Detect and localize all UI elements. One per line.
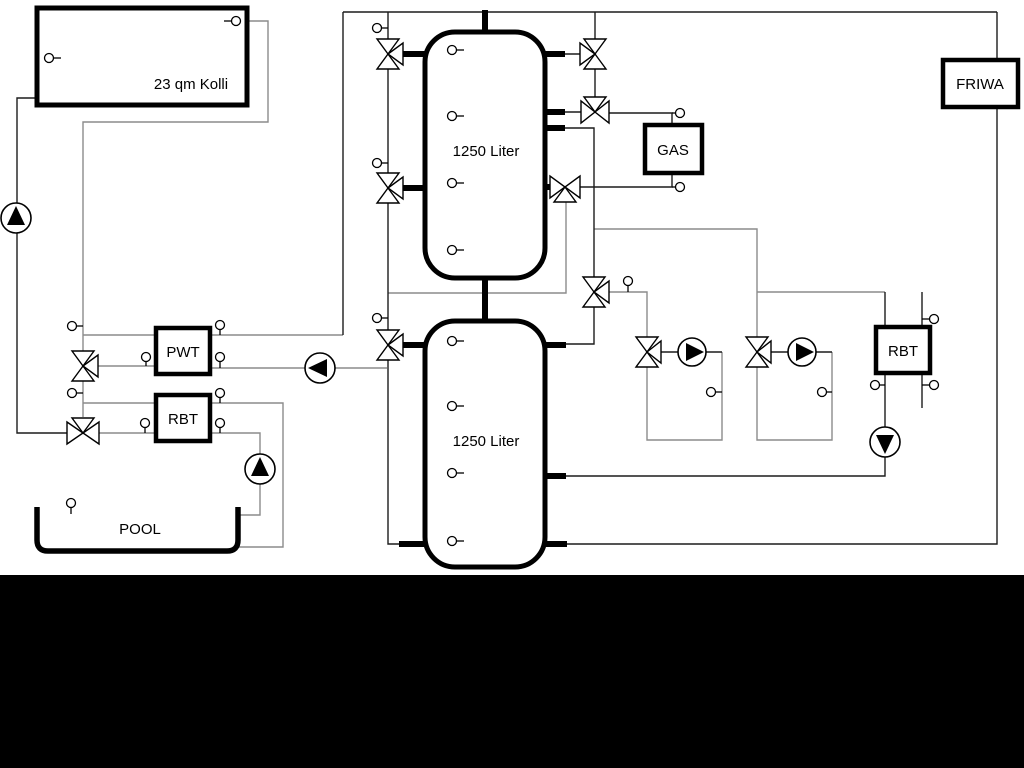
temperature-sensor-icon-secondary-bottom (922, 381, 939, 390)
three-way-valve-icon-tank2-left (377, 330, 403, 360)
temperature-sensor-icon-rbt-top-left (68, 389, 84, 398)
three-way-valve-icon-circuit-2 (746, 337, 771, 367)
temperature-sensor-icon-pool (67, 499, 76, 515)
three-way-valve-icon-tank1-upper-left (377, 39, 403, 69)
temperature-sensor-icon-valve1 (373, 24, 389, 33)
temperature-sensor-icon-rbt-bottom-right (216, 419, 225, 434)
bottom-black-bar (0, 575, 1024, 768)
pipe-tank-valve-column (388, 12, 403, 544)
pipe-collector-supply (17, 98, 67, 433)
hydraulic-schematic-canvas: 23 qm Kolli 1250 Liter 1250 Liter GAS FR… (0, 0, 1024, 768)
rbt-pool-label: RBT (168, 411, 198, 428)
pump-right-icon-circuit-1 (678, 338, 706, 366)
pump-left-icon-pwt (305, 353, 335, 383)
three-way-valve-icon-heating-header (583, 277, 609, 307)
buffer-tank-bottom: 1250 Liter (425, 321, 545, 567)
gas-boiler: GAS (645, 125, 702, 173)
solar-collector: 23 qm Kolli (37, 8, 247, 105)
friwa-station: FRIWA (943, 60, 1018, 107)
temperature-sensor-icon-rbt-right-return (871, 381, 886, 390)
pipe-rbt-right-column (566, 292, 885, 476)
three-way-valve-icon-circuit-1 (636, 337, 661, 367)
three-way-valve-icon-tank1-lower-left (377, 173, 403, 203)
pwt-label: PWT (166, 344, 199, 361)
schematic-page: 23 qm Kolli 1250 Liter 1250 Liter GAS FR… (0, 0, 1024, 768)
pool-basin: POOL (37, 507, 238, 551)
temperature-sensor-icon-valve2 (373, 159, 389, 168)
collector-label: 23 qm Kolli (154, 76, 228, 93)
pwt-heat-exchanger: PWT (156, 328, 210, 374)
buffer-tank-top: 1250 Liter (425, 32, 545, 278)
friwa-label: FRIWA (956, 76, 1004, 93)
buffer-tank-top-label: 1250 Liter (453, 143, 520, 160)
pipe-heating-circuit-1 (609, 292, 722, 440)
pump-up-icon-solar (1, 203, 31, 233)
temperature-sensor-icon-pwt-top-right (216, 321, 225, 336)
temperature-sensor-icon-gas-supply (672, 109, 685, 118)
temperature-sensor-icon-circuit-2-return (818, 388, 833, 397)
pipe-heating-branch (594, 229, 885, 338)
pump-up-icon-pool (245, 454, 275, 484)
rbt-right-label: RBT (888, 343, 918, 360)
three-way-valve-icon-gas-supply (581, 97, 609, 123)
three-way-valve-icon-gas-return (550, 176, 580, 202)
temperature-sensor-icon-rbt-top-right (216, 389, 225, 404)
three-way-valve-icon-pwt (72, 351, 98, 381)
rbt-right-heat-exchanger: RBT (876, 327, 930, 373)
buffer-tank-bottom-label: 1250 Liter (453, 433, 520, 450)
pool-label: POOL (119, 521, 161, 538)
temperature-sensor-icon-circuit-1-return (707, 388, 723, 397)
rbt-pool-heat-exchanger: RBT (156, 395, 210, 441)
pump-down-icon-rbt-right (870, 427, 900, 457)
temperature-sensor-icon-pwt-bottom-left (142, 353, 151, 367)
gas-boiler-label: GAS (657, 142, 689, 159)
temperature-sensor-icon-circuit-1-supply (624, 277, 633, 293)
pump-right-icon-circuit-2 (788, 338, 816, 366)
temperature-sensor-icon-rbt-bottom-left (141, 419, 150, 434)
temperature-sensor-icon-valve3 (373, 314, 389, 323)
temperature-sensor-icon-pwt-top-left (68, 322, 84, 331)
temperature-sensor-icon-secondary-top (922, 315, 939, 324)
temperature-sensor-icon-pwt-bottom-right (216, 353, 225, 369)
three-way-valve-icon-pool (67, 418, 99, 444)
temperature-sensor-icon-gas-return (672, 183, 685, 192)
three-way-valve-icon-gas-top (580, 39, 606, 69)
